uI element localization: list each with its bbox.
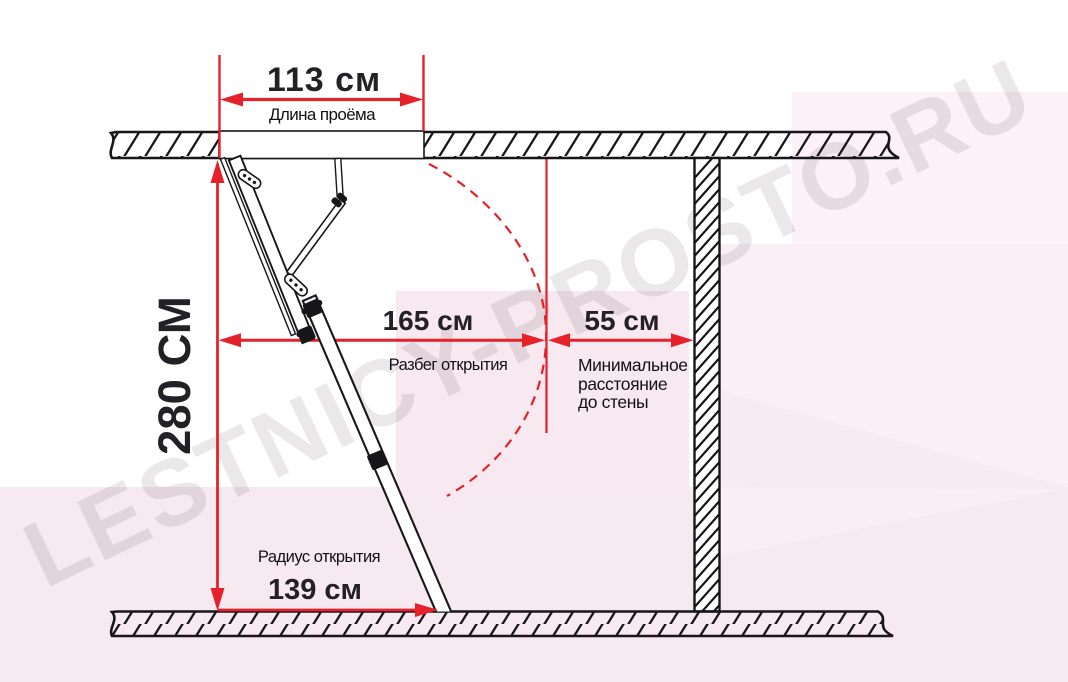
svg-text:139 см: 139 см xyxy=(268,574,362,606)
svg-text:до стены: до стены xyxy=(578,392,648,412)
svg-text:расстояние: расстояние xyxy=(578,374,667,394)
svg-text:55 см: 55 см xyxy=(584,305,659,336)
svg-text:Радиус открытия: Радиус открытия xyxy=(258,548,380,566)
svg-text:Разбег открытия: Разбег открытия xyxy=(389,356,508,374)
svg-text:165 см: 165 см xyxy=(383,305,474,336)
svg-text:Минимальное: Минимальное xyxy=(578,355,688,375)
svg-text:113 см: 113 см xyxy=(267,61,381,99)
svg-text:Длина проёма: Длина проёма xyxy=(269,105,376,124)
svg-text:280 СМ: 280 СМ xyxy=(149,296,200,455)
